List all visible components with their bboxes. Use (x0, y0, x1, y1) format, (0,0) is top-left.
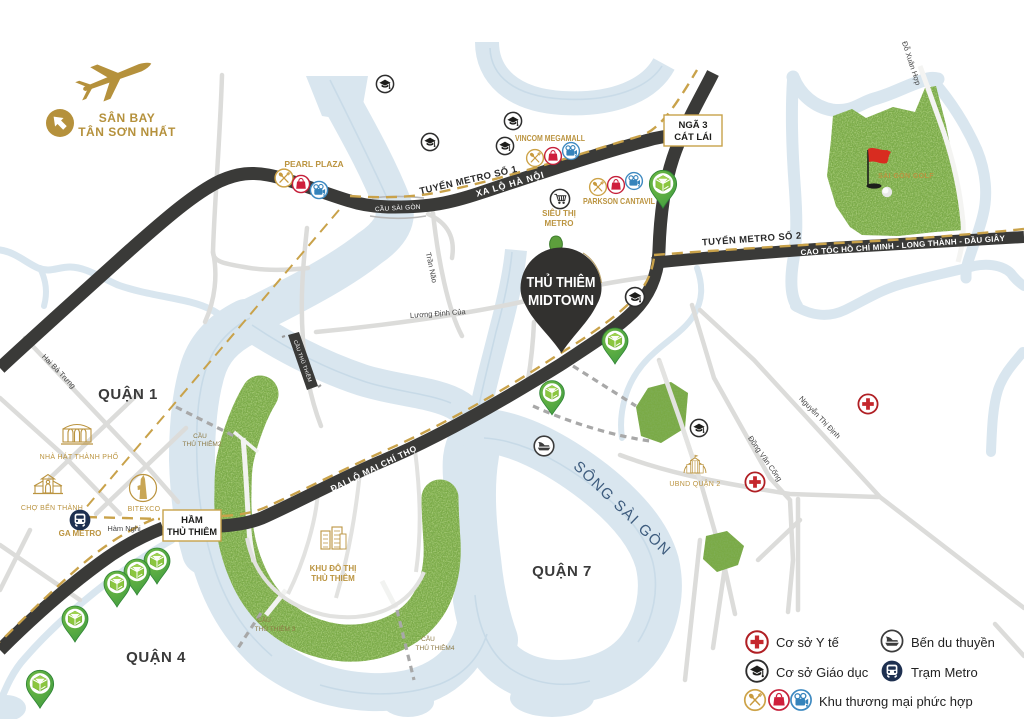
svg-text:Hàm Nghi: Hàm Nghi (107, 524, 141, 533)
svg-text:NGÃ 3: NGÃ 3 (678, 120, 707, 131)
svg-text:Bến du thuyền: Bến du thuyền (911, 635, 995, 650)
svg-text:PEARL PLAZA: PEARL PLAZA (284, 159, 343, 169)
svg-text:Cơ sở Y tế: Cơ sở Y tế (776, 635, 840, 650)
svg-text:VINCOM MEGAMALL: VINCOM MEGAMALL (515, 133, 585, 143)
svg-text:METRO: METRO (545, 219, 574, 228)
svg-text:MIDTOWN: MIDTOWN (528, 292, 594, 309)
svg-text:THỦ THIÊM2: THỦ THIÊM2 (183, 439, 222, 448)
svg-text:HẦM: HẦM (181, 515, 203, 526)
svg-text:THỦ THIÊM: THỦ THIÊM (527, 273, 596, 291)
svg-text:SÂN BAY: SÂN BAY (99, 110, 155, 125)
svg-text:PARKSON CANTAVIL: PARKSON CANTAVIL (583, 196, 655, 206)
svg-text:KHU ĐÔ THỊ: KHU ĐÔ THỊ (310, 564, 357, 573)
svg-text:QUẬN 7: QUẬN 7 (532, 562, 592, 580)
svg-text:THỦ THIÊM: THỦ THIÊM (167, 526, 217, 538)
svg-text:THỦ THIÊM4: THỦ THIÊM4 (416, 643, 455, 652)
svg-text:Cơ sở Giáo dục: Cơ sở Giáo dục (776, 665, 869, 680)
svg-text:CÁT LÁI: CÁT LÁI (674, 132, 711, 143)
svg-text:UBND QUẬN 2: UBND QUẬN 2 (669, 479, 720, 488)
svg-text:QUẬN 4: QUẬN 4 (126, 648, 186, 666)
svg-text:Trạm Metro: Trạm Metro (911, 665, 978, 680)
svg-text:THỦ THIÊM: THỦ THIÊM (311, 574, 355, 583)
svg-text:QUẬN 1: QUẬN 1 (98, 385, 158, 403)
svg-text:THỦ THIÊM 3: THỦ THIÊM 3 (255, 624, 296, 633)
svg-text:BITEXCO: BITEXCO (128, 506, 161, 513)
svg-text:TÂN SƠN NHẤT: TÂN SƠN NHẤT (78, 124, 176, 139)
svg-text:SÀI GÒN GOLF: SÀI GÒN GOLF (878, 171, 934, 180)
svg-text:GA METRO: GA METRO (59, 529, 102, 538)
svg-text:SIÊU THỊ: SIÊU THỊ (542, 209, 576, 218)
svg-text:Khu thương mại phức hợp: Khu thương mại phức hợp (819, 694, 973, 709)
